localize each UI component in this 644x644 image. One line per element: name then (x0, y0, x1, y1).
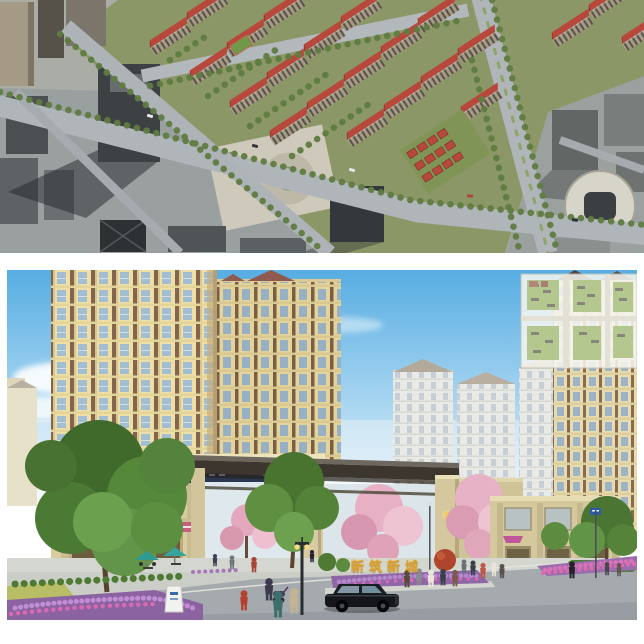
siteplan-inset (521, 274, 637, 368)
page: 新筑新城 (0, 0, 644, 644)
aerial-rendering-figure (0, 0, 644, 253)
street-rendering (7, 270, 637, 620)
aerial-rendering (0, 0, 644, 253)
street-rendering-figure: 新筑新城 (7, 270, 637, 620)
distant-buildings-left (7, 378, 37, 506)
entrance-sign-text: 新筑新城 (351, 556, 423, 575)
a-frame-sign (165, 586, 183, 612)
